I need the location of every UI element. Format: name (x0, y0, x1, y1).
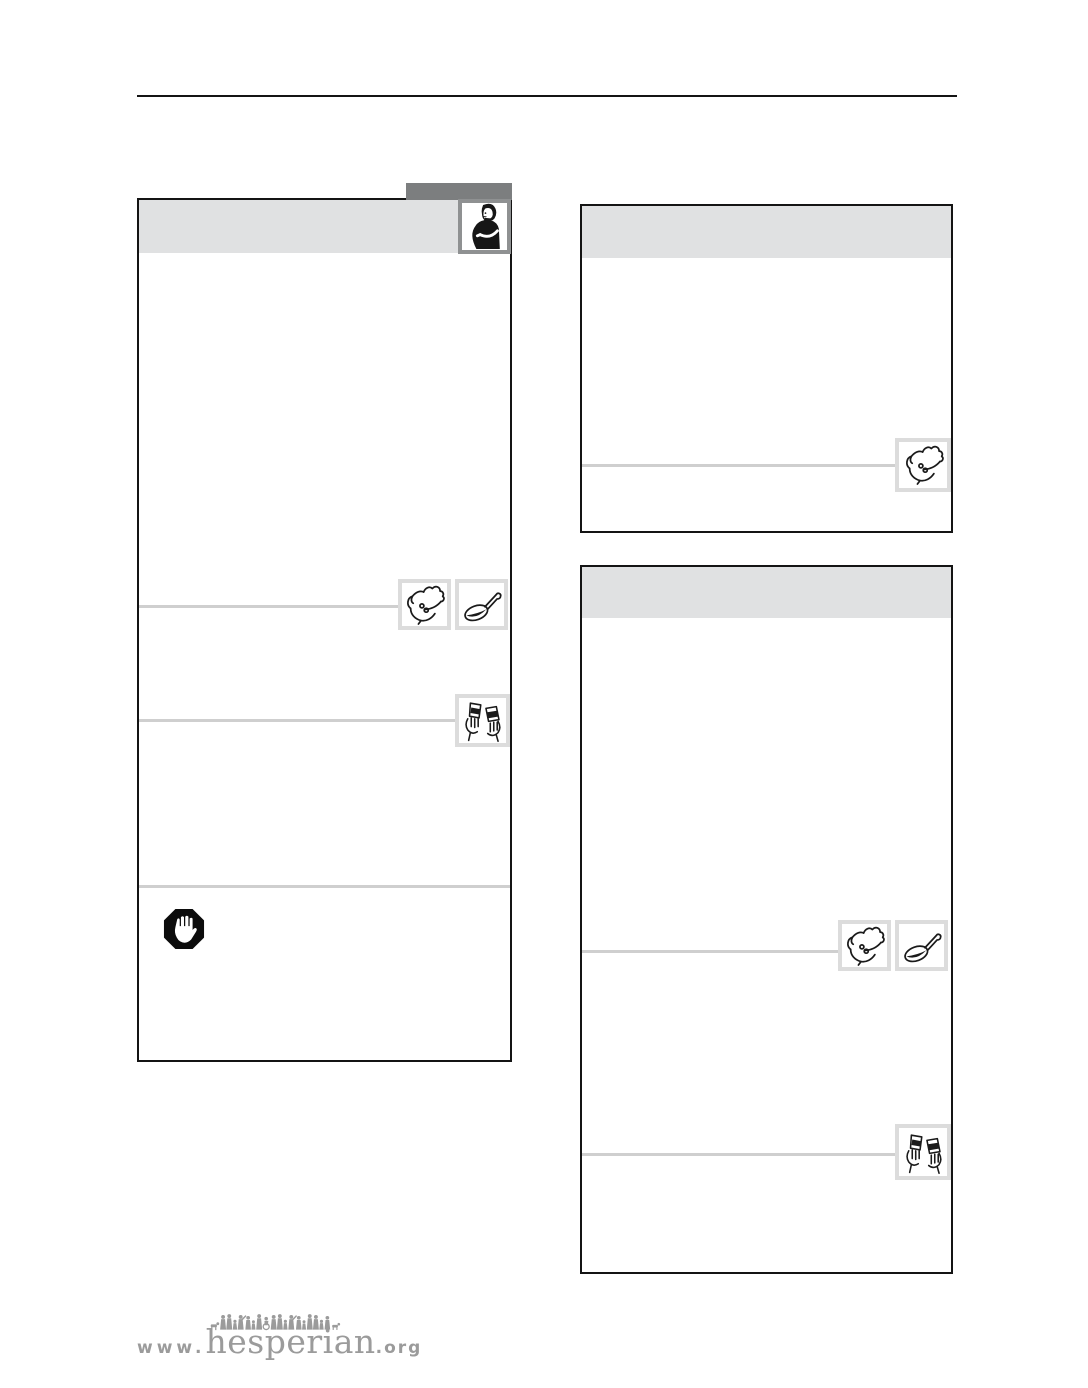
medicine-card-right-bottom (580, 565, 953, 1274)
logo-name-text: hesperian (206, 1325, 376, 1358)
dose-line (582, 950, 838, 953)
dose-icon-pair (398, 579, 508, 630)
dose-icon-pair (838, 920, 948, 971)
medicine-card-right-top (580, 204, 953, 533)
hand-with-pills-icon (398, 579, 451, 630)
stop-hand-icon (163, 908, 205, 950)
dose-line (139, 605, 398, 608)
hesperian-logo: www. hesperian .org (137, 1308, 417, 1358)
hesperian-url: www. hesperian .org (137, 1325, 417, 1358)
card-left-title-band (139, 200, 510, 253)
hand-with-pills-icon (895, 438, 951, 492)
medicine-card-left (137, 198, 512, 1062)
hand-with-pills-icon (838, 920, 891, 971)
page: { "colors": { "ink": "#141414", "card_bo… (0, 0, 1088, 1388)
logo-www-text: www. (137, 1338, 206, 1358)
spoon-icon (455, 579, 508, 630)
logo-org-text: .org (376, 1338, 423, 1358)
section-line (139, 885, 510, 888)
card-right-bottom-title-band (582, 567, 951, 618)
dose-line (582, 1153, 895, 1156)
top-rule (137, 95, 957, 97)
card-right-top-title-band (582, 206, 951, 258)
hands-with-cups-icon (895, 1124, 951, 1180)
spoon-icon (895, 920, 948, 971)
dose-line (582, 464, 895, 467)
hands-with-cups-icon (455, 694, 510, 747)
card-left-corner-tab (406, 183, 512, 200)
dose-line (139, 719, 455, 722)
pregnant-woman-icon (458, 199, 511, 254)
